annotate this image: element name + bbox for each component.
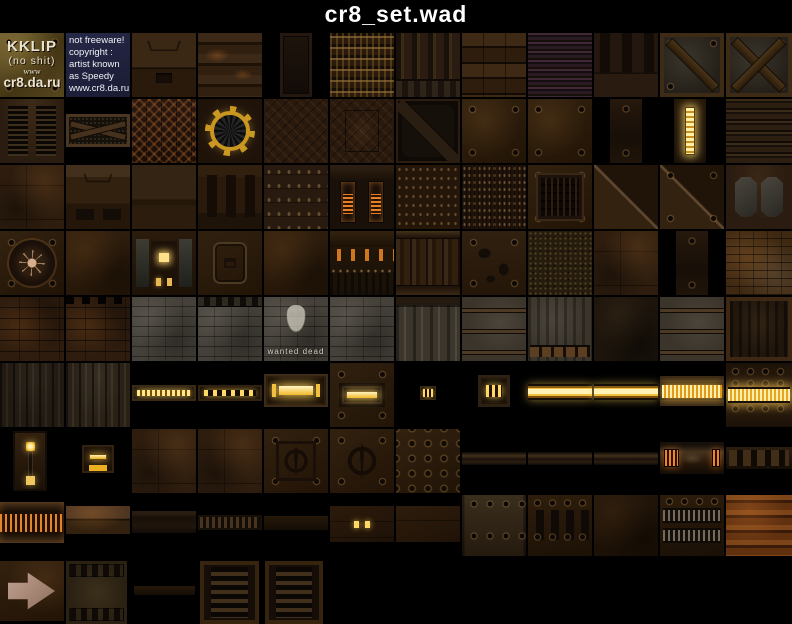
tile-orange-slot-band bbox=[330, 231, 394, 295]
tile-gray-brick-wall-a bbox=[132, 297, 196, 361]
tile-kklip-logo-text-1: (no shit) bbox=[9, 56, 56, 67]
tile-bolted-wall-plate bbox=[462, 495, 526, 556]
tile-thin-pipe-b bbox=[528, 452, 592, 465]
tile-dark-mottled-wall bbox=[594, 297, 658, 361]
tile-plain-rust-plate-a bbox=[66, 231, 130, 295]
tile-dense-rivet-wall bbox=[396, 165, 460, 229]
tile-diagonal-seam-plate-b bbox=[660, 165, 724, 229]
tile-mesh-wall bbox=[462, 165, 526, 229]
tile-pillar-slot-wall bbox=[594, 33, 658, 97]
tile-patched-plate-d bbox=[198, 429, 262, 493]
tile-banded-gray-brick-wall bbox=[198, 297, 262, 361]
tile-coil-strip bbox=[0, 502, 64, 543]
tile-kklip-logo-text-3: cr8.da.ru bbox=[3, 76, 60, 90]
tile-rust-banded-pipe bbox=[726, 495, 792, 556]
tile-thin-strip bbox=[264, 516, 328, 530]
tile-octagon-frame-plate bbox=[198, 231, 262, 295]
tile-streaked-concrete-wall bbox=[396, 297, 460, 361]
tile-rust-strip bbox=[66, 506, 130, 534]
tile-light-beam-b bbox=[594, 384, 658, 400]
tile-slotted-trapezoid-wall bbox=[66, 165, 130, 229]
tile-copyright-note-text-3: as Speedy bbox=[69, 71, 127, 83]
tile-bolted-plate-b bbox=[528, 99, 592, 163]
tile-kklip-logo: KKLIP(no shit)wwwcr8.da.ru bbox=[0, 33, 64, 97]
tile-narrow-bolted-strip bbox=[610, 99, 642, 163]
tile-bordered-light-beam bbox=[660, 376, 724, 406]
tile-crenellated-brick-wall bbox=[66, 297, 130, 361]
tile-narrow-light-strip bbox=[674, 99, 706, 163]
tile-octagon-recess-wall bbox=[726, 165, 792, 229]
tile-dashed-strip bbox=[198, 515, 262, 530]
tile-debris-bolted-plate bbox=[462, 231, 526, 295]
tile-slot-band-block bbox=[66, 561, 127, 624]
tile-copyright-note-text-1: copyright : bbox=[69, 47, 127, 59]
tile-framed-quake-plate bbox=[264, 429, 328, 493]
tile-copyright-note-text-2: artist known bbox=[69, 59, 127, 71]
tile-copyright-note-text-4: www.cr8.da.ru bbox=[69, 83, 127, 95]
tile-thin-pipe-a bbox=[462, 452, 526, 465]
tile-panel-row-wall bbox=[462, 33, 526, 97]
tile-narrow-plate bbox=[676, 231, 708, 295]
tile-quake-emblem-plate bbox=[330, 429, 394, 493]
tile-trapezoid-wall bbox=[132, 33, 196, 97]
tile-seamed-plate bbox=[396, 506, 460, 542]
tile-bolt-grid-plate bbox=[396, 429, 460, 493]
tile-dark-brick-wall bbox=[0, 297, 64, 361]
wad-title: cr8_set.wad bbox=[0, 1, 792, 28]
tile-braced-fence bbox=[66, 114, 130, 147]
tile-railed-concrete-wall-a bbox=[462, 297, 526, 361]
tile-arrow-sign bbox=[0, 561, 64, 621]
tile-graffiti-brick-wall: wanted dead bbox=[264, 297, 328, 361]
tile-graffiti-brick-wall-text-0: wanted dead bbox=[264, 347, 328, 356]
tile-streaked-metal-b bbox=[66, 363, 130, 427]
tile-patched-plate-b bbox=[594, 231, 658, 295]
tile-light-window-panel bbox=[132, 231, 196, 295]
tile-seam-band-wall bbox=[132, 165, 196, 229]
tile-gray-brick-wall-b bbox=[330, 297, 394, 361]
tile-thin-pipe-c bbox=[594, 452, 658, 465]
tile-spider-emblem-plate bbox=[0, 231, 64, 295]
tile-glowing-pipe-coupling bbox=[660, 442, 724, 474]
tile-framed-grunge-wall bbox=[726, 297, 792, 361]
tile-copyright-note-text-0: not freeware! bbox=[69, 35, 127, 47]
tile-vertical-slot-wall bbox=[198, 165, 262, 229]
tile-crate-single-brace bbox=[660, 33, 724, 97]
tile-dashed-light-bar bbox=[132, 385, 196, 401]
tile-tiny-light bbox=[420, 386, 436, 400]
tile-framed-vent-plate bbox=[528, 165, 592, 229]
tile-crosshatch-panel-plate bbox=[330, 99, 394, 163]
tile-bolted-light-beam-plate bbox=[726, 363, 792, 427]
tile-coil-pillar-wall bbox=[330, 165, 394, 229]
tile-slatted-concrete-wall bbox=[528, 297, 592, 361]
tile-crate-cross-brace bbox=[726, 33, 792, 97]
tile-railed-concrete-wall-b bbox=[660, 297, 724, 361]
tile-cog-fan-vent bbox=[198, 99, 262, 163]
tile-slotted-pipe bbox=[726, 447, 792, 469]
tile-riveted-rows-wall bbox=[264, 165, 328, 229]
tile-framed-light-plate bbox=[330, 363, 394, 427]
tile-light-beam-a bbox=[528, 384, 592, 400]
tile-crosshatch-plate bbox=[264, 99, 328, 163]
tile-double-vent-wall bbox=[0, 99, 64, 163]
tile-grate-ladder bbox=[330, 33, 394, 97]
tile-double-bar-light bbox=[82, 445, 114, 473]
tile-dark-strip bbox=[132, 511, 196, 533]
tile-rust-band-wall bbox=[198, 33, 262, 97]
tile-banded-metal-wall bbox=[726, 99, 792, 163]
tile-narrow-door bbox=[280, 33, 312, 97]
tile-streaked-metal-a bbox=[0, 363, 64, 427]
tile-copyright-note: not freeware!copyright :artist knownas S… bbox=[66, 33, 130, 97]
tile-narrow-light-panel bbox=[13, 431, 47, 491]
tile-dotted-light-bar bbox=[198, 385, 262, 401]
tile-slotted-bolt-plate bbox=[528, 495, 592, 556]
tile-bolted-plate-a bbox=[462, 99, 526, 163]
tile-caged-light-box bbox=[264, 374, 328, 407]
tile-plain-rust-plate-b bbox=[264, 231, 328, 295]
tile-patched-plate-a bbox=[0, 165, 64, 229]
tile-diagonal-seam-plate-a bbox=[594, 165, 658, 229]
tile-patched-plate-c bbox=[132, 429, 196, 493]
tile-thin-pipe-d bbox=[134, 586, 195, 595]
tile-tall-vent-grille-a bbox=[200, 561, 259, 624]
tile-striped-metal bbox=[528, 33, 592, 97]
tile-speckled-ground bbox=[528, 231, 592, 295]
tile-dark-plate bbox=[594, 495, 658, 556]
texture-sheet-page: cr8_set.wad KKLIP(no shit)wwwcr8.da.runo… bbox=[0, 0, 792, 624]
tile-pipe-column-wall bbox=[396, 231, 460, 295]
tile-ribbed-wall bbox=[396, 33, 460, 97]
tile-indicator-light-plate bbox=[330, 506, 394, 542]
tile-rust-brick-wall bbox=[726, 231, 792, 295]
tile-ribbed-coupling-plate bbox=[660, 495, 724, 556]
tile-small-caged-light bbox=[478, 375, 510, 407]
tile-tall-vent-grille-b bbox=[265, 561, 323, 624]
tile-kklip-logo-text-0: KKLIP bbox=[7, 39, 57, 55]
tile-zigzag-plate bbox=[132, 99, 196, 163]
tile-hazard-diagonal-door bbox=[396, 99, 460, 163]
